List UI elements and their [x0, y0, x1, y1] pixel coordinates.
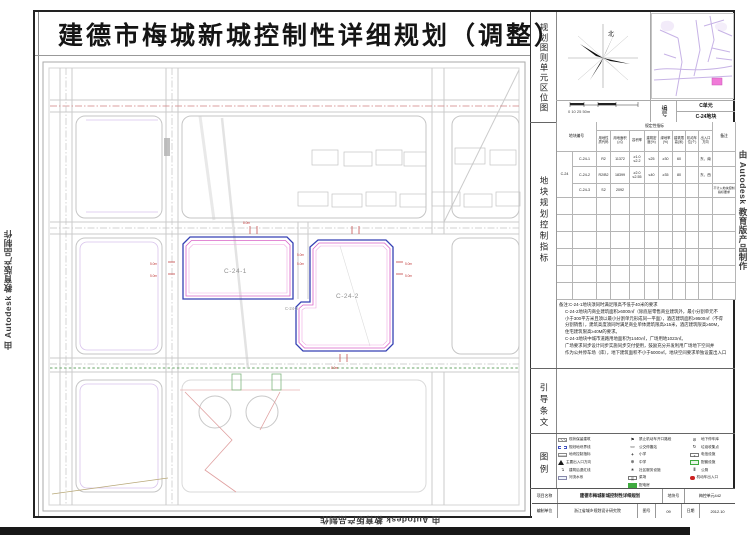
table-cell [630, 184, 645, 198]
table-header-remarks: 备注 [713, 122, 736, 152]
table-cell [659, 266, 673, 283]
table-cell [673, 215, 686, 232]
table-cell: 公厕 [701, 468, 708, 473]
location-map-box [651, 13, 734, 99]
table-cell [699, 198, 713, 215]
table-cell [597, 266, 611, 283]
table-cell: 东、西 [699, 167, 713, 184]
table-cell [573, 249, 597, 266]
table-cell: ≤25 [645, 152, 659, 167]
table-cell: 东、南 [699, 152, 713, 167]
table-cell [597, 198, 611, 215]
market-icon: 菜 [628, 476, 637, 481]
table-cell [659, 249, 673, 266]
setback-arrow-icon: ↴ [558, 468, 567, 473]
table-cell: 公交停靠站 [639, 445, 657, 450]
legend-column-3: ⊘地下停车库 ↻垃圾收集点 T电信设施 配套设施 ‖公厕 机动车出入口 [690, 436, 735, 482]
table-cell [645, 198, 659, 215]
table-cell [673, 266, 686, 283]
bus-stop-icon: ▭ [628, 445, 637, 450]
table-cell [611, 215, 630, 232]
table-cell [699, 266, 713, 283]
table-cell [686, 283, 699, 300]
section-label-guidance: 引导条文 [532, 381, 556, 431]
org-label: 编制单位 [532, 504, 558, 518]
table-cell [686, 152, 699, 167]
underground-parking-icon: ⊘ [690, 438, 699, 443]
table-cell: ↻垃圾收集点 [690, 444, 735, 452]
table-cell: 建筑限高(米) [673, 131, 686, 152]
table-cell [659, 283, 673, 300]
date-value: 2012.10 [700, 504, 735, 518]
table-cell [713, 198, 736, 215]
table-cell: 机动车出入口 [697, 475, 719, 480]
table-cell: 现状保留建筑 [558, 436, 628, 444]
table-cell [630, 198, 645, 215]
table-cell [713, 232, 736, 249]
legend-column-2: ⚑禁止机动车开口路段 ▭公交停靠站 +小学 ⊕中学 ∗社区服务设施 菜菜场 配电… [628, 436, 688, 489]
autodesk-watermark-left: 由 Autodesk 教育版产品制作 [2, 140, 14, 350]
table-cell [659, 184, 673, 198]
table-cell: 建筑密度(%) [645, 131, 659, 152]
table-cell [659, 198, 673, 215]
section-label-legend: 图例 [532, 447, 556, 481]
compass-blades [580, 30, 630, 80]
table-cell: 绿地率(%) [659, 131, 673, 152]
telecom-icon: T [690, 453, 699, 458]
table-cell [557, 198, 573, 215]
table-cell [557, 232, 573, 249]
table-cell [699, 249, 713, 266]
indicators-table: 地块编号 规定性指标 备注 用地性质代码用地面积(㎡) 容积率建筑密度(%) 绿… [556, 122, 735, 300]
table-cell [645, 283, 659, 300]
table-cell: 容积率 [630, 131, 645, 152]
vehicle-entry-icon [690, 476, 695, 481]
project-name-value: 建德市梅城新城控制性详细规划 [558, 489, 663, 503]
table-cell: 中学 [639, 460, 646, 465]
table-cell: R2/B2 [597, 167, 611, 184]
table-cell [573, 266, 597, 283]
table-cell: S2 [597, 184, 611, 198]
no-entry-flag-icon: ⚑ [628, 438, 637, 443]
code-block-value: C-24地块 [677, 111, 735, 122]
table-cell: 菜菜场 [628, 474, 688, 482]
table-cell: 规划地块界线 [569, 445, 591, 450]
table-cell: 建筑后退红线 [569, 468, 591, 473]
table-cell: 禁止机动车开口路段 [639, 437, 671, 442]
section-label-indicators: 地块规划控制指标 [532, 172, 556, 268]
code-unit-value: C单元 [677, 100, 735, 111]
scale-labels: 0 10 25 50m [568, 109, 591, 114]
refuse-icon: ↻ [690, 445, 699, 450]
table-cell: T电信设施 [690, 451, 735, 459]
table-cell [573, 198, 597, 215]
table-cell: ≥1.0 ≤2.2 [630, 152, 645, 167]
table-cell [611, 232, 630, 249]
legend: 现状保留建筑 规划地块界线 地块控制指标 主要出入口方向 ↴建筑后退红线 河流水… [556, 434, 735, 488]
table-cell [686, 249, 699, 266]
code-label: 编号 [651, 100, 676, 122]
table-cell [699, 215, 713, 232]
parent-code-cell: C-24 [557, 152, 573, 198]
table-cell [659, 215, 673, 232]
table-cell: 18399 [611, 167, 630, 184]
section-line-2 [530, 368, 735, 369]
table-cell [699, 283, 713, 300]
table-cell [686, 266, 699, 283]
date-label: 日期 [682, 504, 700, 518]
table-cell [597, 232, 611, 249]
table-cell: 电信设施 [701, 452, 715, 457]
table-header-block: 地块编号 [557, 122, 597, 152]
table-cell [573, 232, 597, 249]
table-cell [645, 266, 659, 283]
power-room-icon [628, 483, 637, 488]
sheet-title: 建德市梅城新城控制性详细规划（调整） [58, 16, 562, 52]
table-cell: 用地面积(㎡) [611, 131, 630, 152]
table-cell: ≥30 [659, 152, 673, 167]
project-name-label: 项目名称 [532, 489, 558, 503]
location-map [652, 14, 733, 98]
scale-bar: 0 10 25 50m [566, 98, 646, 118]
table-cell [686, 232, 699, 249]
green-facility-icon [690, 460, 699, 465]
table-cell [597, 283, 611, 300]
table-cell: ▭公交停靠站 [628, 444, 688, 452]
table-cell: 用地性质代码 [597, 131, 611, 152]
water-rect-icon [558, 476, 567, 481]
table-cell [713, 283, 736, 300]
legend-column-1: 现状保留建筑 规划地块界线 地块控制指标 主要出入口方向 ↴建筑后退红线 河流水… [558, 436, 628, 482]
table-cell [611, 249, 630, 266]
table-cell: +小学 [628, 451, 688, 459]
table-cell [686, 198, 699, 215]
table-cell: 地下停车库 [701, 437, 719, 442]
table-cell [699, 232, 713, 249]
table-cell: ↴建筑后退红线 [558, 466, 628, 474]
table-cell [699, 184, 713, 198]
table-cell [597, 249, 611, 266]
table-cell: 垃圾收集点 [701, 445, 719, 450]
table-cell: 菜场 [639, 475, 646, 480]
table-cell [686, 215, 699, 232]
table-cell: ≥2.0 ≤2.55 [630, 167, 645, 184]
table-cell: ⚑禁止机动车开口路段 [628, 436, 688, 444]
table-cell [673, 232, 686, 249]
panel-divider [530, 10, 531, 518]
indicator-box-icon [558, 453, 567, 458]
table-cell [645, 232, 659, 249]
table-cell [673, 198, 686, 215]
table-cell [713, 266, 736, 283]
table-cell: ‖公厕 [690, 466, 735, 474]
table-cell: 不计入地块控制指标要求 [713, 184, 736, 198]
table-cell: 80 [673, 167, 686, 184]
north-label: 北 [608, 30, 614, 38]
bottom-black-bar [0, 527, 690, 535]
titleblock-row-2: 编制单位 浙江省城乡规划设计研究院 图号 09 日期 2012.10 [532, 503, 735, 518]
table-cell: ⊕中学 [628, 459, 688, 467]
sheet-inner-border-line [38, 12, 39, 516]
table-cell: ≤40 [645, 167, 659, 184]
table-header-prescriptive: 规定性指标 [597, 122, 713, 131]
figure-number-label: 图号 [638, 504, 656, 518]
table-cell: 河流水系 [558, 474, 628, 482]
org-value: 浙江省城乡规划设计研究院 [558, 504, 638, 518]
table-cell [557, 215, 573, 232]
toilet-icon: ‖ [690, 468, 699, 473]
table-cell [557, 266, 573, 283]
legend-label: 现状保留建筑 [569, 437, 591, 442]
table-cell [630, 266, 645, 283]
table-cell [611, 266, 630, 283]
table-row-cell: C-24-1 [573, 152, 597, 167]
plus-icon: + [628, 453, 637, 458]
table-cell: 河流水系 [569, 475, 583, 480]
table-cell: 配套设施 [701, 460, 715, 465]
table-cell [611, 198, 630, 215]
table-cell [713, 249, 736, 266]
table-cell [713, 152, 736, 167]
table-cell [573, 215, 597, 232]
north-compass: 北 [560, 14, 646, 96]
table-cell [645, 249, 659, 266]
section-label-location: 规划图则单元区位图 [532, 18, 556, 118]
table-cell [597, 215, 611, 232]
table-cell: ≥35 [659, 167, 673, 184]
table-row-cell: C-24-3 [573, 184, 597, 198]
table-cell [673, 249, 686, 266]
sheet-number-label: 地块号 [663, 489, 685, 503]
circle-plus-icon: ⊕ [628, 460, 637, 465]
dashed-boundary-icon [558, 446, 567, 449]
table-cell: 社区服务设施 [639, 468, 661, 473]
table-cell [713, 215, 736, 232]
titleblock-row-1: 项目名称 建德市梅城新城控制性详细规划 地块号 梅控单元442 [532, 488, 735, 503]
hatch-rect-icon [558, 438, 567, 443]
community-icon: ∗ [628, 468, 637, 473]
table-cell [573, 283, 597, 300]
table-cell [659, 232, 673, 249]
table-cell [557, 283, 573, 300]
table-cell: 60 [673, 152, 686, 167]
table-cell [611, 283, 630, 300]
table-cell [645, 184, 659, 198]
triangle-icon [558, 460, 564, 465]
table-cell [645, 215, 659, 232]
table-cell: 主要出入口方向 [558, 459, 628, 467]
table-cell [673, 283, 686, 300]
table-cell: 地块控制指标 [558, 451, 628, 459]
table-cell [630, 215, 645, 232]
table-cell [713, 167, 736, 184]
table-cell: 2092 [611, 184, 630, 198]
table-cell: 配套设施 [690, 459, 735, 467]
figure-number-value: 09 [656, 504, 682, 518]
table-cell: 小学 [639, 452, 646, 457]
table-cell: 规划地块界线 [558, 444, 628, 452]
remarks-notes: 备注:C-24-1地块须同时满足限高不低于40米的要求C-24-2地块内商业建筑… [559, 302, 733, 357]
autodesk-watermark-right: 由 Autodesk 教育版产品制作 [737, 150, 749, 360]
table-cell: 主要出入口方向 [566, 460, 591, 465]
table-cell: 出入口方向 [699, 131, 713, 152]
table-cell [630, 232, 645, 249]
table-cell [630, 249, 645, 266]
title-underline [35, 55, 530, 56]
drawing-sheet: { "title": "建德市梅城新城控制性详细规划（调整）", "waterm… [0, 0, 750, 535]
table-cell: 机动车位(个) [686, 131, 699, 152]
table-cell [686, 167, 699, 184]
current-block-highlight [712, 78, 722, 85]
table-cell [630, 283, 645, 300]
table-cell: R2 [597, 152, 611, 167]
table-row-cell: C-24-2 [573, 167, 597, 184]
table-cell [673, 184, 686, 198]
table-cell: ⊘地下停车库 [690, 436, 735, 444]
table-cell: ∗社区服务设施 [628, 466, 688, 474]
autodesk-watermark-bottom: 由 Autodesk 教育版产品制作 [280, 514, 480, 526]
table-cell: 机动车出入口 [690, 474, 735, 482]
table-cell [557, 249, 573, 266]
table-cell [686, 184, 699, 198]
table-cell: 地块控制指标 [569, 452, 591, 457]
sheet-number-value: 梅控单元442 [685, 489, 735, 503]
table-cell: 11372 [611, 152, 630, 167]
